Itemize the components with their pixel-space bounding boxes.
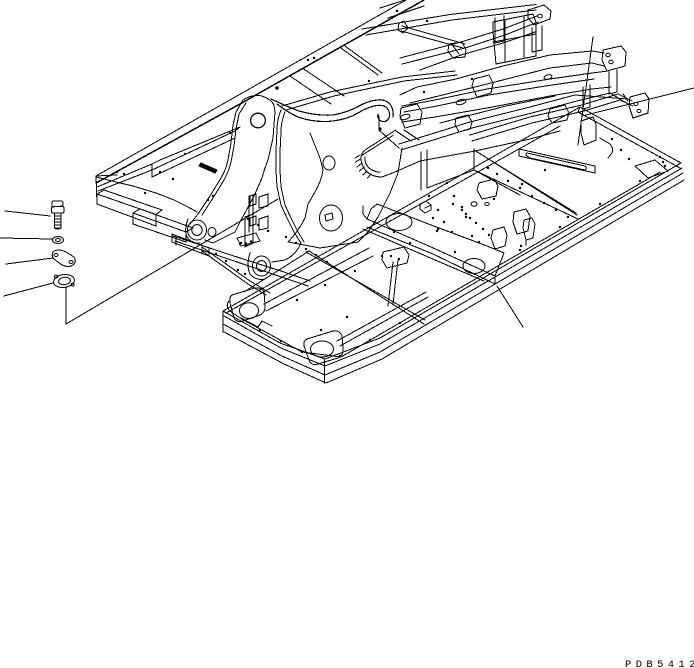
svg-text:PDB5412: PDB5412 xyxy=(625,659,694,668)
